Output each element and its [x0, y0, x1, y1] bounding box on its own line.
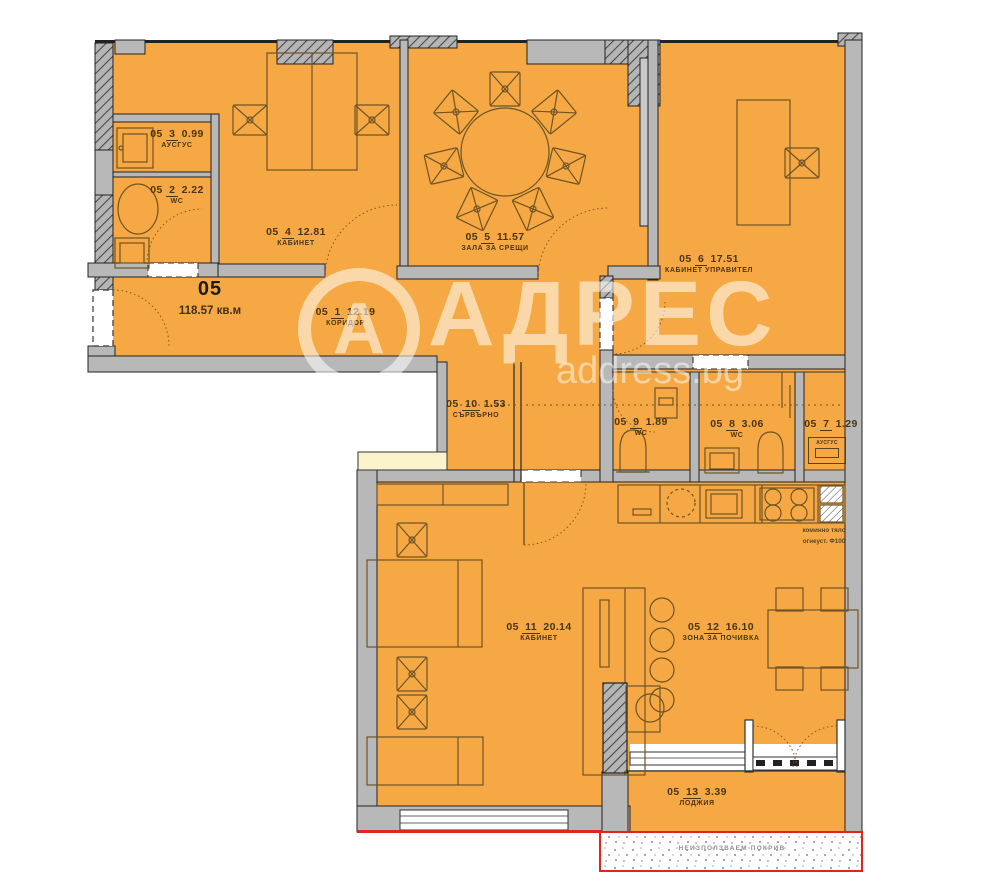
chimney-block — [820, 486, 843, 503]
door-post — [837, 720, 845, 772]
floorplan-page: 05 118.57 кв.м 05 1 12.19 КОРИДОР 05 2 2… — [0, 0, 1000, 895]
roof-band — [357, 830, 862, 871]
chimney-block — [820, 505, 843, 522]
entrance-opening — [93, 290, 113, 346]
window-zone12 — [630, 752, 747, 765]
right-wall — [845, 40, 862, 834]
floorplan-drawing — [0, 0, 1000, 895]
door-post — [745, 720, 753, 772]
window-opening-room6 — [693, 355, 748, 369]
column — [603, 683, 627, 773]
window-room11 — [400, 810, 568, 830]
floor-areas — [95, 40, 845, 834]
door-opening-room11 — [521, 470, 581, 482]
window-strip — [358, 452, 447, 470]
corridor-bottom-wall — [88, 356, 437, 372]
loggia-floor — [625, 772, 845, 834]
wc-door-opening — [148, 263, 198, 277]
